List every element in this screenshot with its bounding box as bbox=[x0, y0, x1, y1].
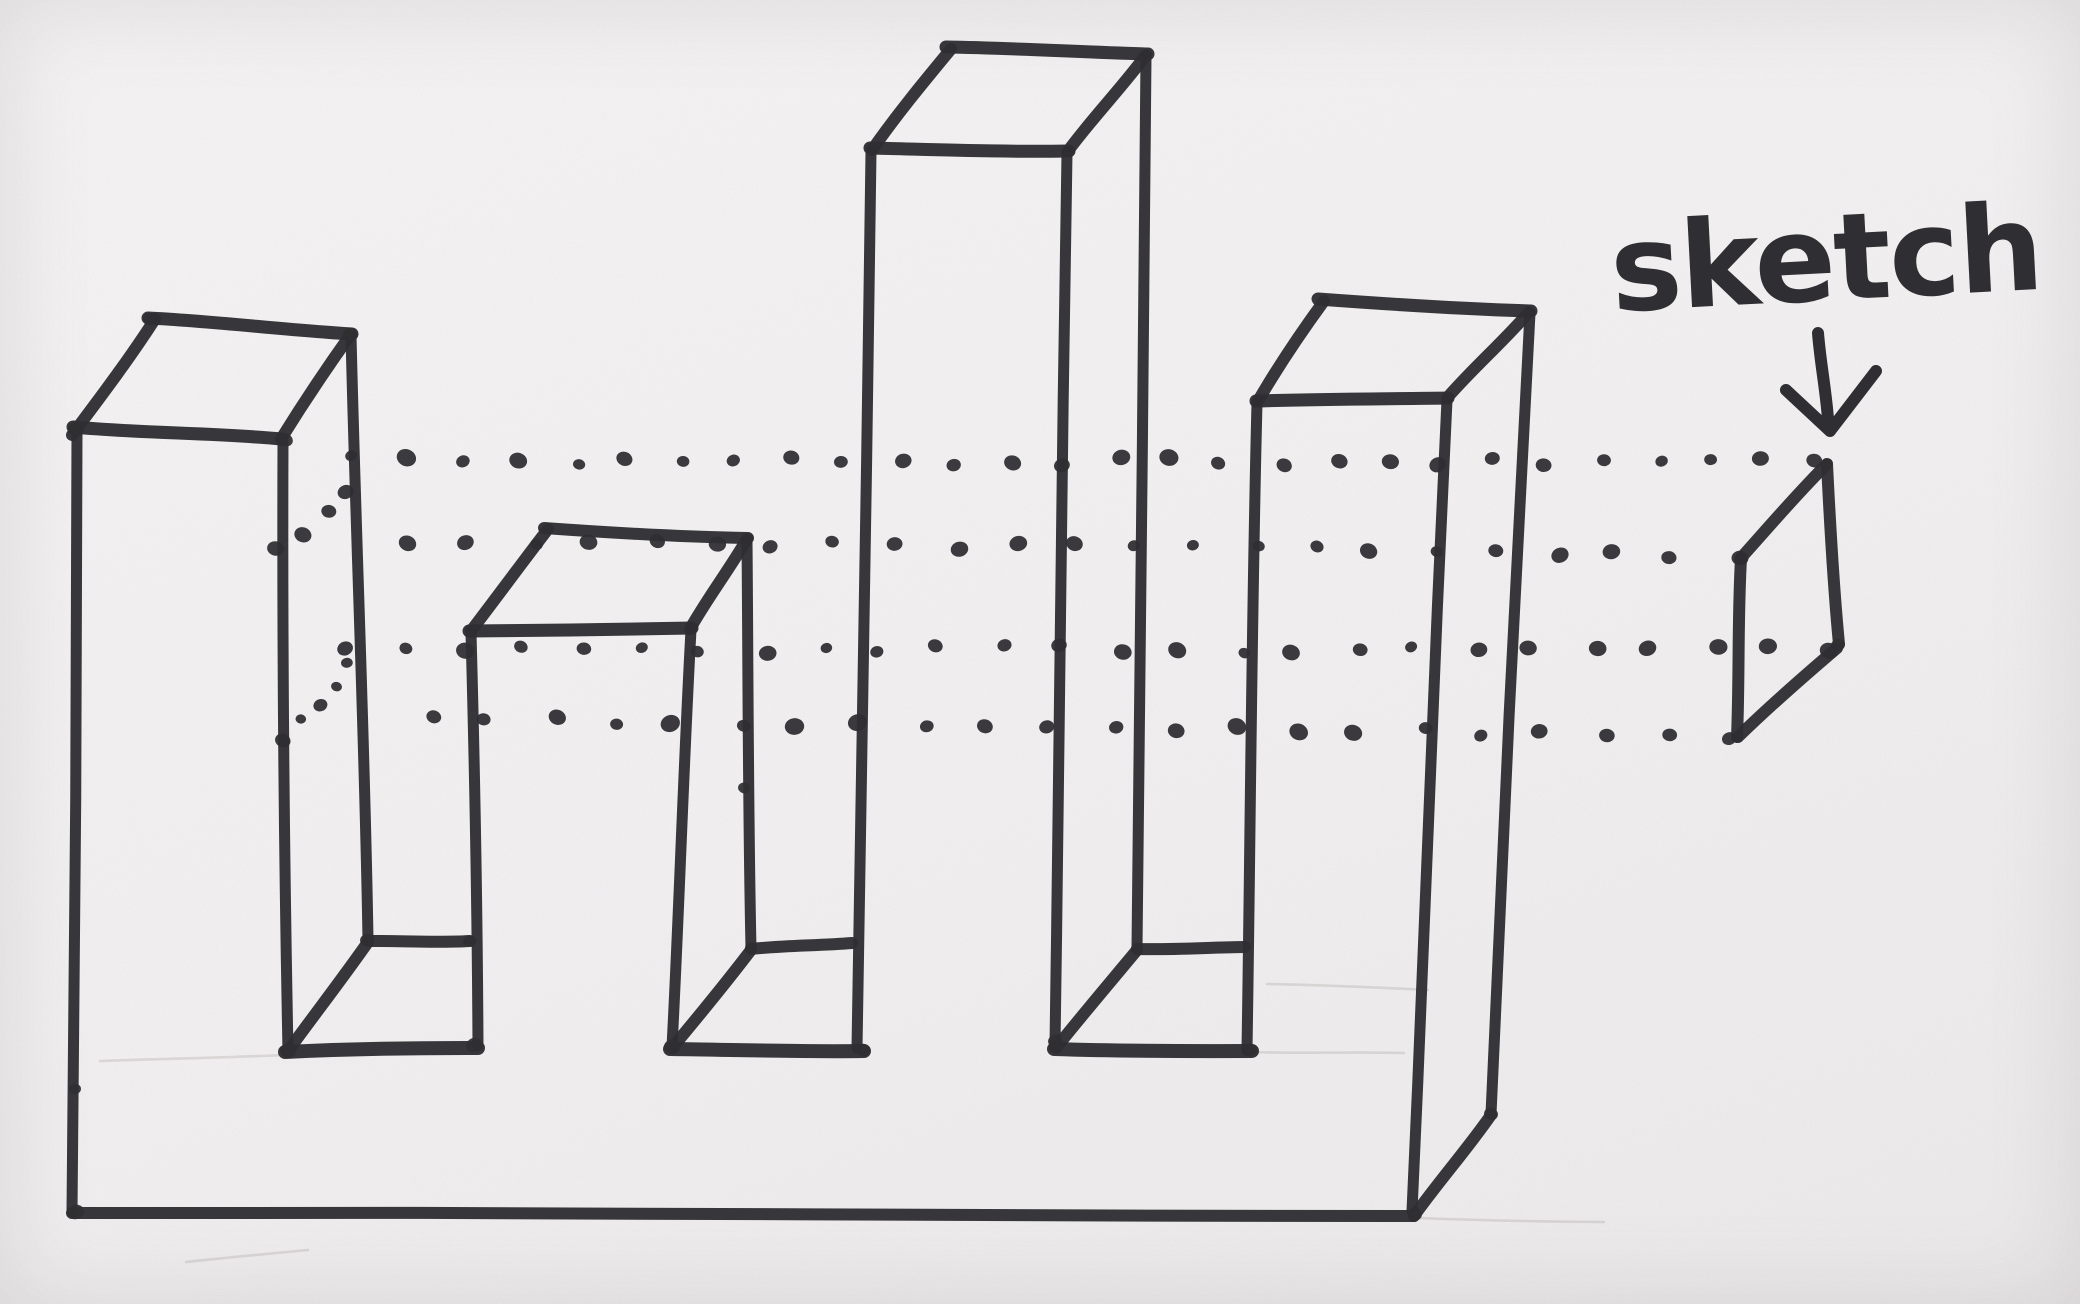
projection-dot bbox=[658, 712, 682, 735]
tower3-front-left-vertical-edge bbox=[857, 152, 871, 1048]
projection-dot bbox=[1598, 728, 1615, 743]
projection-dot bbox=[784, 717, 805, 736]
projection-dot bbox=[886, 536, 903, 551]
projection-dot bbox=[1597, 454, 1612, 467]
projection-dot bbox=[1158, 447, 1180, 467]
projection-dot bbox=[676, 455, 690, 467]
projection-dot bbox=[1602, 543, 1622, 560]
projection-dot bbox=[273, 731, 293, 750]
projection-dot bbox=[1108, 720, 1125, 735]
tower1-back-right-vertical-edge bbox=[351, 335, 368, 940]
projection-dot bbox=[1535, 458, 1552, 473]
smudge-bottom-left bbox=[186, 1250, 308, 1262]
projection-dot bbox=[1588, 640, 1607, 657]
projection-dot bbox=[1186, 539, 1200, 552]
projection-dot bbox=[572, 458, 586, 470]
projection-dot bbox=[758, 645, 777, 662]
base-bottom-right-depth-edge bbox=[1414, 1115, 1491, 1216]
notch2-back-bottom-edge bbox=[751, 943, 852, 949]
projection-dot bbox=[1661, 550, 1678, 565]
base-bottom-front-edge bbox=[72, 1213, 1414, 1216]
projection-dot bbox=[396, 533, 418, 554]
projection-dot bbox=[1287, 721, 1311, 744]
projection-dot bbox=[761, 538, 780, 556]
projection-dot bbox=[398, 641, 414, 656]
guide-bottom-right bbox=[1418, 1218, 1604, 1222]
tower4-top-back-edge bbox=[1318, 299, 1531, 311]
projection-dot bbox=[394, 446, 419, 470]
projection-dot bbox=[894, 452, 914, 470]
projection-dot bbox=[335, 639, 355, 658]
projection-dot bbox=[1662, 728, 1678, 742]
notch2-depth-diagonal-edge bbox=[672, 950, 751, 1048]
projection-dot bbox=[609, 718, 623, 731]
projection-dot bbox=[1342, 722, 1365, 743]
tower4-top-left-depth-edge bbox=[1258, 301, 1324, 401]
projection-dot bbox=[1038, 719, 1056, 736]
projection-dot bbox=[824, 534, 840, 548]
tower3-back-right-vertical-edge bbox=[1137, 56, 1146, 948]
tower1-top-left-depth-edge bbox=[72, 319, 155, 435]
projection-dot bbox=[926, 637, 944, 654]
projection-dot bbox=[634, 641, 649, 655]
tower2-back-right-vertical-edge bbox=[747, 540, 751, 948]
projection-dot bbox=[1008, 534, 1029, 553]
projection-dot bbox=[1357, 541, 1379, 562]
projection-dot bbox=[455, 532, 476, 552]
projection-dot bbox=[1549, 545, 1571, 566]
sketch-plane-bottom-depth-edge bbox=[1738, 648, 1837, 737]
tower4-front-left-vertical-edge bbox=[1247, 403, 1257, 1050]
projection-line-top-back bbox=[343, 446, 1823, 475]
projection-dot bbox=[1470, 641, 1489, 658]
scanned-paper-photo: sketch bbox=[0, 0, 2080, 1304]
projection-dot bbox=[820, 642, 834, 655]
marker-outline-strokes bbox=[72, 47, 1839, 1216]
projection-dot bbox=[996, 637, 1013, 653]
tower2-top-front-edge bbox=[469, 628, 692, 631]
ink-corner-blobs bbox=[66, 311, 1847, 1223]
projection-dot bbox=[1484, 451, 1501, 466]
projection-dot bbox=[1530, 723, 1549, 740]
projection-dot bbox=[1112, 643, 1133, 662]
projection-dot bbox=[1329, 452, 1349, 471]
projection-dot bbox=[869, 645, 884, 659]
arrow-shaft bbox=[1818, 333, 1828, 419]
tower1-top-right-depth-edge bbox=[281, 334, 351, 439]
tower3-front-right-vertical-edge bbox=[1055, 153, 1067, 1045]
notch2-front-bottom-edge bbox=[670, 1049, 864, 1051]
notch3-depth-diagonal-edge bbox=[1056, 950, 1137, 1048]
projection-dot bbox=[1052, 457, 1071, 475]
projection-dot bbox=[919, 719, 935, 734]
hand-drawn-projection-diagram: sketch bbox=[0, 0, 2080, 1304]
tower2-top-back-edge bbox=[544, 528, 748, 538]
tower2-front-right-vertical-edge bbox=[672, 630, 691, 1047]
notch3-front-bottom-edge bbox=[1054, 1049, 1252, 1051]
projection-dot bbox=[546, 707, 568, 728]
projection-dot bbox=[1381, 453, 1400, 470]
guide-left-notch-level bbox=[100, 1055, 286, 1061]
projection-dot bbox=[782, 449, 801, 466]
projection-dot bbox=[1274, 456, 1294, 475]
projection-dot bbox=[975, 717, 995, 735]
projection-dot bbox=[1704, 454, 1717, 465]
projection-dot bbox=[295, 714, 307, 724]
projection-dot bbox=[330, 681, 343, 693]
projection-dot bbox=[1309, 538, 1326, 554]
tower3-top-left-depth-edge bbox=[872, 49, 951, 150]
projection-dot bbox=[1472, 728, 1489, 744]
notch1-front-bottom-edge bbox=[285, 1048, 478, 1052]
projection-dot bbox=[1758, 638, 1777, 655]
projection-dot bbox=[512, 639, 529, 655]
guide-right-back-level bbox=[1267, 984, 1428, 990]
projection-dot bbox=[1166, 639, 1189, 661]
projection-dot bbox=[1209, 455, 1227, 472]
sketch-plane-right-edge bbox=[1827, 464, 1839, 644]
projection-dot bbox=[725, 453, 742, 469]
tower4-back-right-vertical-edge bbox=[1491, 313, 1530, 1114]
sketch-plane-top-depth-edge bbox=[1740, 465, 1826, 559]
projection-dot bbox=[1637, 638, 1659, 658]
projection-dot bbox=[949, 540, 970, 559]
notch1-depth-diagonal-edge bbox=[288, 942, 368, 1051]
projection-dot bbox=[1487, 543, 1504, 558]
projection-dot bbox=[1709, 639, 1728, 655]
down-arrow-icon bbox=[1786, 333, 1876, 431]
projection-dot bbox=[340, 657, 353, 668]
tower4-top-front-edge bbox=[1256, 398, 1448, 401]
projection-dot bbox=[312, 697, 330, 713]
tower3-top-back-edge bbox=[946, 47, 1148, 54]
projection-dot bbox=[1352, 642, 1369, 657]
projection-dot bbox=[833, 455, 848, 468]
projection-dot bbox=[945, 457, 962, 472]
sketch-plane-left-edge bbox=[1737, 559, 1741, 737]
notch3-back-bottom-edge bbox=[1137, 947, 1245, 949]
tower3-top-right-depth-edge bbox=[1068, 55, 1146, 151]
tower4-front-right-vertical-edge bbox=[1412, 400, 1447, 1211]
projection-dot bbox=[1002, 453, 1023, 473]
projection-dot bbox=[292, 524, 314, 545]
tower1-top-front-edge bbox=[73, 427, 282, 439]
projection-dot bbox=[1225, 715, 1249, 738]
projection-dot bbox=[1280, 642, 1302, 662]
guide-right-notch-level bbox=[1252, 1052, 1404, 1053]
projection-dot bbox=[1751, 451, 1769, 467]
projection-dot bbox=[1166, 722, 1186, 740]
projection-dot bbox=[425, 708, 443, 725]
projection-dot bbox=[614, 449, 635, 468]
projection-dot bbox=[321, 504, 337, 519]
tower2-front-left-vertical-edge bbox=[471, 633, 478, 1046]
tower3-top-front-edge bbox=[870, 148, 1069, 151]
projection-dot bbox=[576, 642, 592, 656]
sketch-label: sketch bbox=[1607, 179, 2045, 340]
projection-dot bbox=[1403, 640, 1418, 655]
projection-line-bottom-front bbox=[425, 707, 1738, 747]
tower2-top-right-depth-edge bbox=[690, 539, 747, 629]
projection-dot bbox=[1519, 640, 1538, 657]
tower4-top-right-depth-edge bbox=[1447, 312, 1529, 398]
projection-line-bottom-back bbox=[335, 637, 1840, 663]
projection-dot bbox=[1654, 454, 1669, 468]
projection-dot bbox=[454, 453, 471, 469]
notch1-back-bottom-edge bbox=[368, 941, 470, 942]
projection-dot bbox=[1064, 534, 1085, 553]
projection-dot bbox=[507, 450, 529, 471]
tower1-top-back-edge bbox=[148, 318, 352, 334]
tower1-left-vertical-edge bbox=[72, 431, 77, 1212]
projection-dot bbox=[1111, 448, 1132, 467]
